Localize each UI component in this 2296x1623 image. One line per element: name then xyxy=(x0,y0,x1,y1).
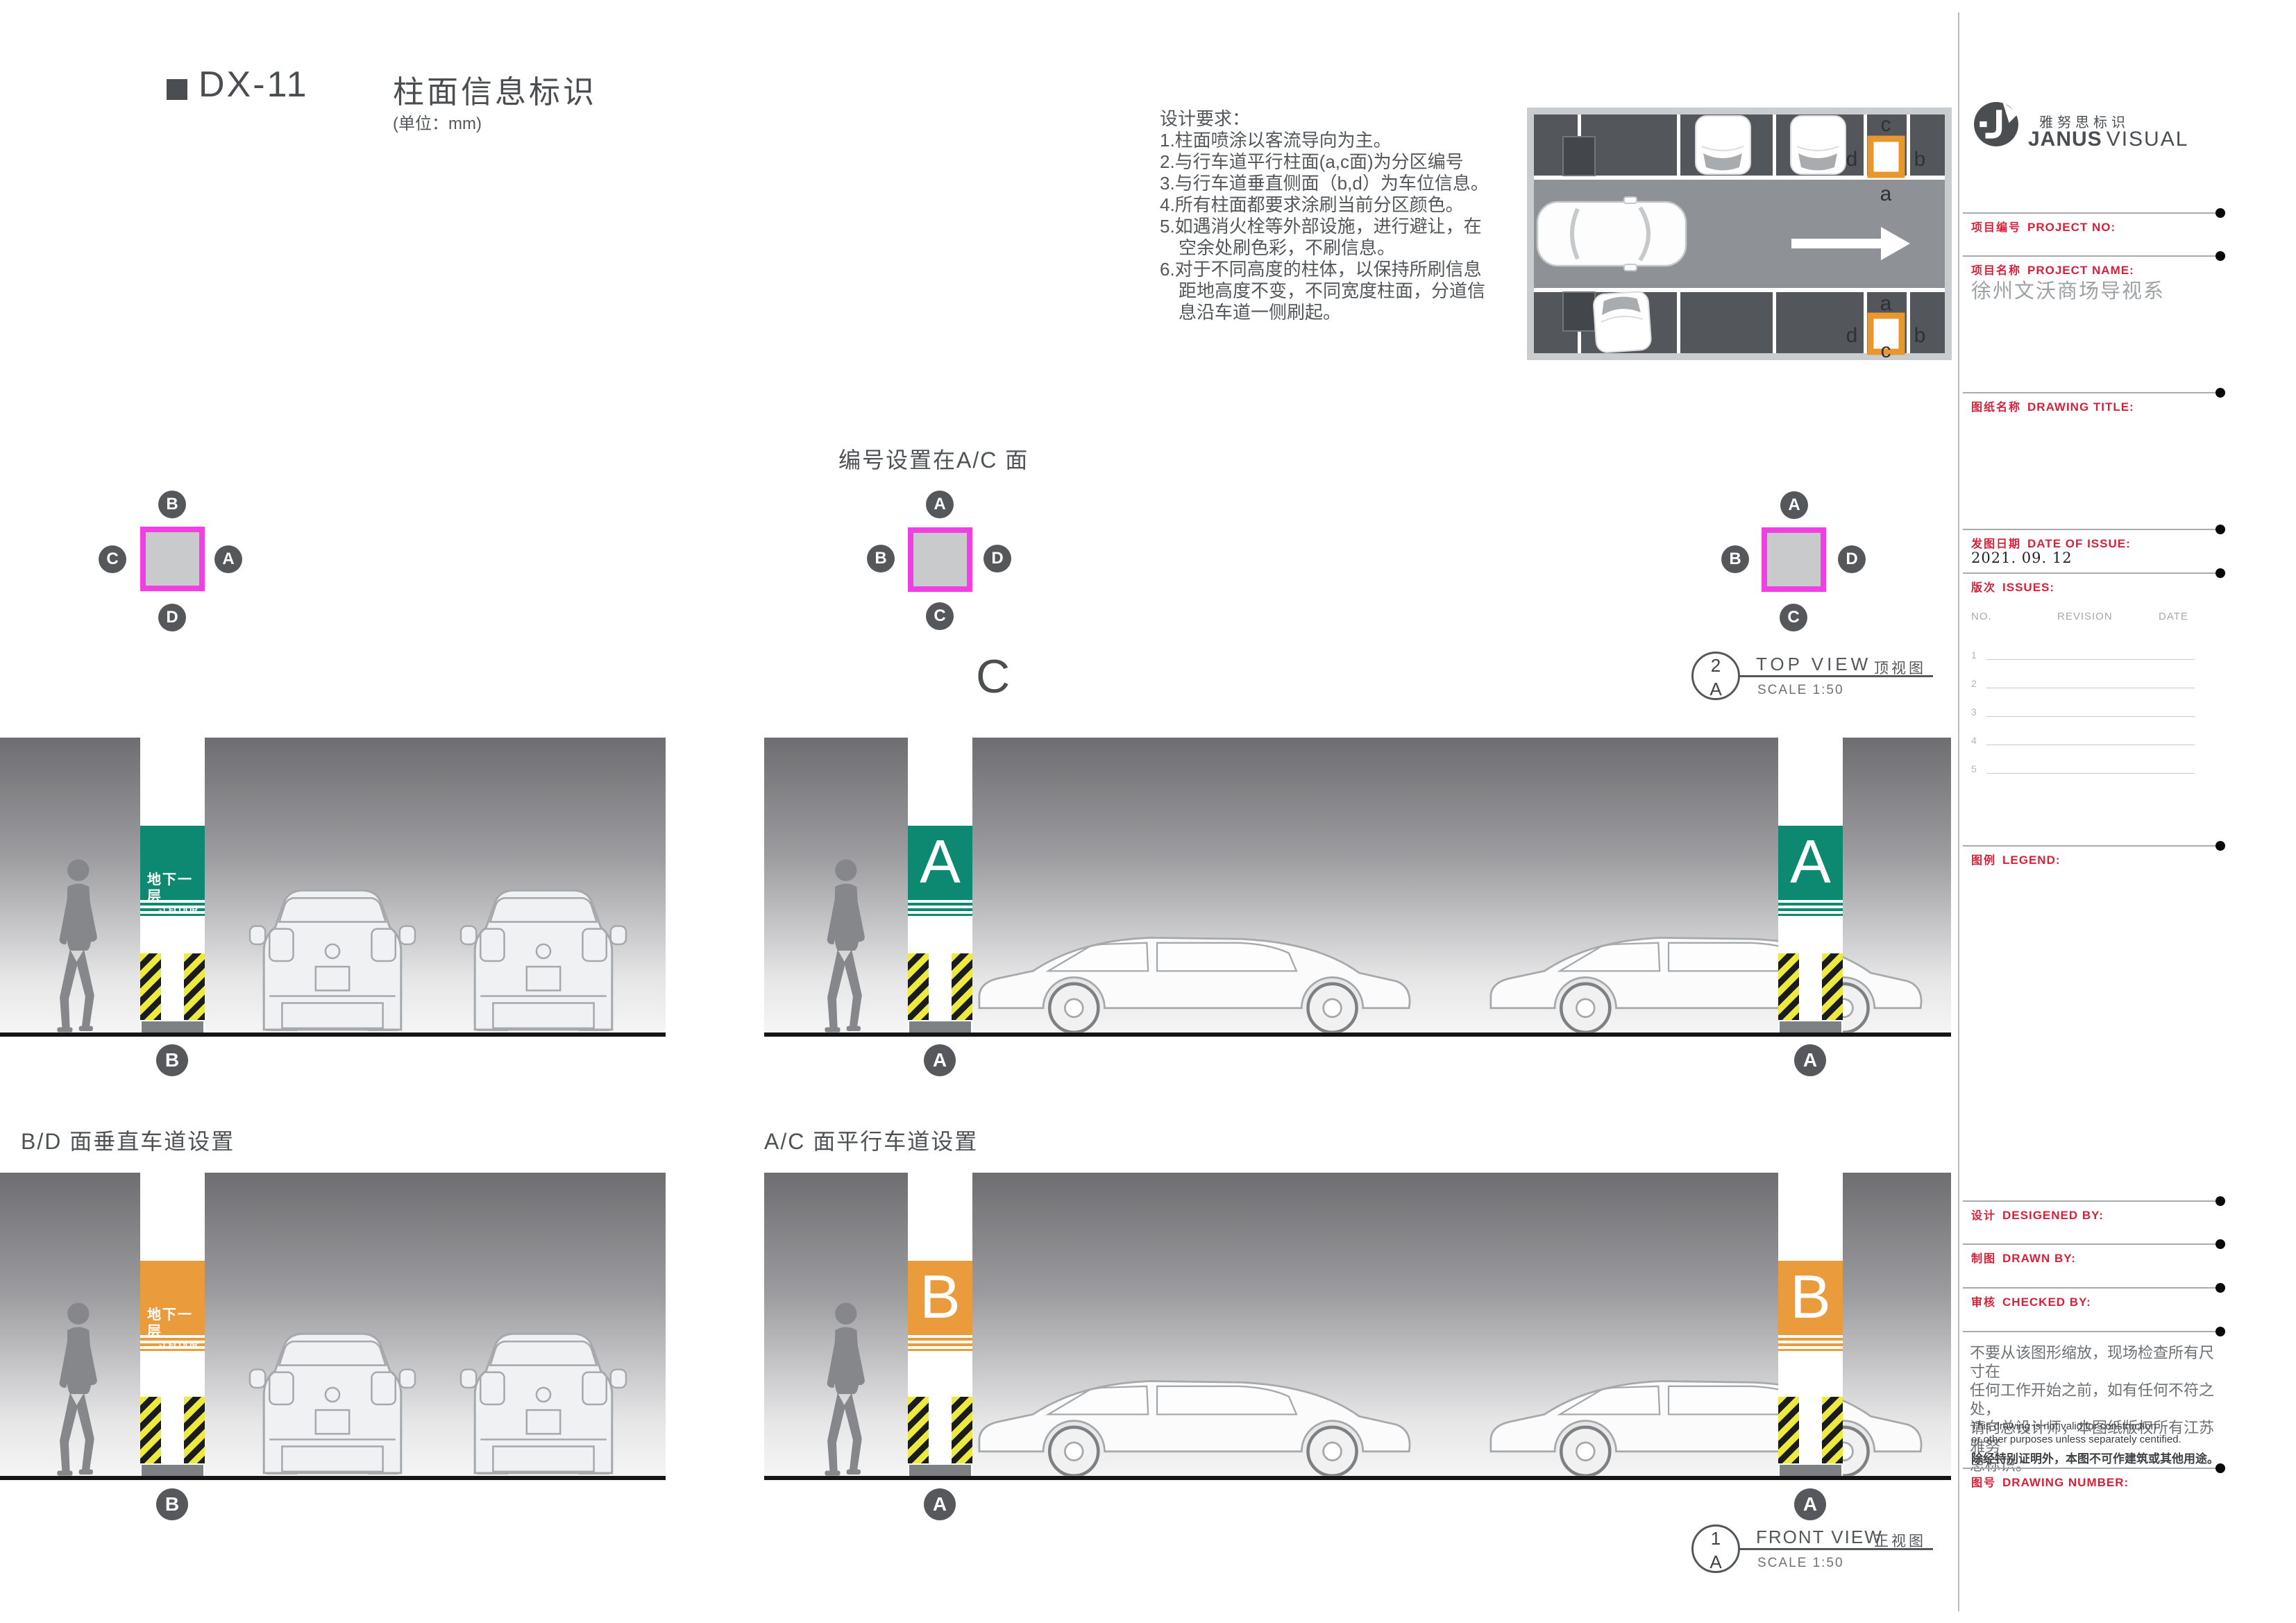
disclaimer-cn-bold: 除经特别证明外，本图不可作建筑或其他用途。 xyxy=(1971,1449,2235,1466)
car-rear-view xyxy=(459,884,627,1033)
hazard-stripe xyxy=(1778,953,1799,1020)
column-plinth xyxy=(142,1465,203,1476)
rev-header-revision: REVISION xyxy=(2057,611,2113,622)
field-rule xyxy=(1963,1331,2218,1332)
column-plinth xyxy=(909,1021,971,1033)
field-rule xyxy=(1963,1468,2218,1469)
face-label: c xyxy=(1881,339,1891,360)
view-number: 1 xyxy=(1691,1528,1740,1549)
issues-label: 版次ISSUES: xyxy=(1971,578,2054,595)
face-badge: C xyxy=(1780,604,1807,631)
title-bullet-square xyxy=(167,79,187,100)
sheet-title: 柱面信息标识 xyxy=(393,67,597,112)
date-of-issue-value: 2021. 09. 12 xyxy=(1971,550,2073,566)
label-cn: 项目编号 xyxy=(1971,222,2021,234)
date-of-issue-label: 发图日期DATE OF ISSUE: xyxy=(1971,534,2131,551)
face-label: a xyxy=(1880,292,1892,315)
person-silhouette xyxy=(44,853,108,1033)
face-badge: C xyxy=(926,602,954,630)
rev-header-no: NO. xyxy=(1971,611,1992,622)
column-face-callout: A xyxy=(1794,1488,1826,1520)
drawn-by-label: 制图DRAWN BY: xyxy=(1971,1249,2076,1266)
face-badge: B xyxy=(1721,545,1749,573)
requirement-line: 2.与行车道平行柱面(a,c面)为分区编号 xyxy=(1160,151,1538,173)
disclaimer-line: This drawing is not valid for constructi… xyxy=(1971,1420,2228,1433)
person-silhouette xyxy=(44,1297,108,1476)
structure-column-plan xyxy=(1563,137,1595,176)
view-title-cn: 正视图 xyxy=(1874,1530,1926,1551)
car-side-view xyxy=(1482,907,1930,1033)
hazard-stripe xyxy=(908,1397,929,1463)
disclaimer-line: 任何工作开始之前，如有任何不符之处， xyxy=(1970,1381,2227,1418)
brand-en-light: VISUAL xyxy=(2107,128,2189,151)
face-badge: A xyxy=(926,491,954,518)
zone-sign-green: A xyxy=(1778,826,1843,916)
rev-row-line xyxy=(1986,773,2195,774)
view-title-cn: 顶视图 xyxy=(1874,657,1926,678)
signed-column: B xyxy=(908,1173,972,1476)
checked-by-label: 审核CHECKED BY: xyxy=(1971,1293,2091,1309)
field-rule xyxy=(1963,1243,2218,1245)
face-label: d xyxy=(1846,324,1858,347)
elevation-bd-lower: 地下一层 -1 FLOOR xyxy=(0,1173,666,1480)
signed-column: A xyxy=(908,738,972,1033)
car-rear-view xyxy=(248,1327,416,1476)
label-cn: 发图日期 xyxy=(1971,538,2021,550)
car-side-view xyxy=(970,1350,1418,1476)
view-title: FRONT VIEW xyxy=(1756,1527,1883,1548)
floor-sign-green: 地下一层 -1 FLOOR xyxy=(140,826,205,916)
rev-row-no: 3 xyxy=(1971,706,1977,717)
view-ref-letter: A xyxy=(1691,1552,1740,1573)
car-side-view xyxy=(1482,1350,1930,1476)
rev-row-no: 2 xyxy=(1971,678,1977,689)
hazard-stripe xyxy=(184,953,205,1020)
column-topview-middle xyxy=(908,527,972,592)
parked-car-top xyxy=(1696,116,1750,174)
zone-sign-green: A xyxy=(908,826,972,916)
disclaimer-line: or other purposes unless separately cent… xyxy=(1971,1433,2228,1446)
column-topview-right xyxy=(1762,527,1826,592)
column-plinth xyxy=(142,1021,203,1033)
label-cn: 审核 xyxy=(1971,1297,1996,1309)
face-label: c xyxy=(1881,113,1891,136)
hazard-stripe xyxy=(140,1397,161,1463)
car-side-view xyxy=(970,907,1418,1033)
label-en: DRAWN BY: xyxy=(2002,1252,2076,1265)
face-badge: D xyxy=(1838,545,1866,573)
label-cn: 设计 xyxy=(1971,1210,1996,1222)
column-face-callout: A xyxy=(924,1044,956,1076)
view-title: TOP VIEW xyxy=(1756,654,1871,675)
hazard-stripe xyxy=(952,1397,972,1463)
signed-column: B xyxy=(1778,1173,1843,1476)
face-label: b xyxy=(1914,324,1926,347)
hazard-stripe xyxy=(140,953,161,1020)
hazard-stripe xyxy=(1778,1397,1799,1463)
requirements-title: 设计要求： xyxy=(1160,108,1538,130)
requirement-line: 1.柱面喷涂以客流导向为主。 xyxy=(1160,130,1538,151)
section-title-ac: A/C 面平行车道设置 xyxy=(764,1124,978,1156)
floor-sign-orange: 地下一层 -1 FLOOR xyxy=(140,1261,205,1351)
label-en: ISSUES: xyxy=(2002,581,2054,594)
view-number: 2 xyxy=(1691,655,1740,677)
janus-logo-icon xyxy=(1973,101,2019,147)
column-topview-left xyxy=(140,527,205,591)
parked-car-top xyxy=(1791,116,1846,174)
requirement-line: 6.对于不同高度的柱体，以保持所刷信息 xyxy=(1160,259,1538,280)
signed-column-plan-top xyxy=(1871,139,1902,175)
field-rule xyxy=(1963,255,2218,257)
rev-row-line xyxy=(1986,659,2195,660)
hazard-stripe xyxy=(1822,953,1843,1020)
label-en: DATE OF ISSUE: xyxy=(2027,537,2131,550)
rev-row-line xyxy=(1986,716,2195,717)
face-label: a xyxy=(1880,182,1892,205)
rev-header-date: DATE xyxy=(2159,611,2188,622)
face-badge: B xyxy=(158,491,186,518)
view-ref-letter: A xyxy=(1691,679,1740,700)
person-silhouette xyxy=(812,853,876,1033)
design-requirements: 设计要求： 1.柱面喷涂以客流导向为主。 2.与行车道平行柱面(a,c面)为分区… xyxy=(1160,108,1538,323)
hazard-stripe xyxy=(908,953,929,1020)
face-badge: A xyxy=(214,545,242,573)
column-face-callout: B xyxy=(156,1488,188,1520)
hazard-stripe xyxy=(184,1397,205,1463)
drawing-title-label: 图纸名称DRAWING TITLE: xyxy=(1971,398,2134,414)
view-scale: SCALE 1:50 xyxy=(1757,1556,1844,1571)
zone-letter: B xyxy=(908,1266,972,1327)
drawing-sheet: DX-11 柱面信息标识 (单位：mm) 设计要求： 1.柱面喷涂以客流导向为主… xyxy=(0,0,2296,1623)
project-name-value: 徐州文沃商场导视系 xyxy=(1971,275,2165,304)
signed-column: A xyxy=(1778,738,1843,1033)
person-silhouette xyxy=(812,1297,876,1476)
rev-row-no: 1 xyxy=(1971,649,1977,661)
zone-sign-orange: B xyxy=(1778,1261,1843,1351)
zone-sign-orange: B xyxy=(908,1261,972,1351)
hazard-stripe xyxy=(1822,1397,1843,1463)
zone-letter: A xyxy=(1778,831,1843,892)
label-cn: 图号 xyxy=(1971,1477,1996,1489)
column-face-callout: B xyxy=(156,1044,188,1076)
column-plinth xyxy=(1780,1021,1841,1033)
zone-letter: A xyxy=(908,831,972,892)
face-badge: D xyxy=(158,604,186,631)
project-no-label: 项目编号PROJECT NO: xyxy=(1971,218,2116,235)
face-badge: B xyxy=(867,545,895,572)
requirement-line: 3.与行车道垂直侧面（b,d）为车位信息。 xyxy=(1160,173,1538,194)
field-rule xyxy=(1963,212,2218,214)
disclaimer-line: 不要从该图形缩放，现场检查所有尺寸在 xyxy=(1970,1343,2227,1381)
rev-row-line xyxy=(1986,688,2195,688)
signed-column: 地下一层 -1 FLOOR xyxy=(140,1173,205,1476)
parking-plan-diagram: c d b a a d b c xyxy=(1527,108,1952,360)
structure-column-plan xyxy=(1563,292,1595,331)
requirement-line: 5.如遇消火栓等外部设施，进行避让，在 xyxy=(1160,216,1538,237)
column-face-callout: A xyxy=(924,1488,956,1520)
requirement-line: 距地高度不变，不同宽度柱面，分道信 xyxy=(1160,280,1538,302)
label-cn: 版次 xyxy=(1971,582,1996,594)
numbering-note: 编号设置在A/C 面 xyxy=(838,443,1029,475)
face-label: d xyxy=(1846,148,1858,171)
designed-by-label: 设计DESIGENED BY: xyxy=(1971,1206,2104,1223)
field-rule xyxy=(1963,392,2218,393)
zone-letter: B xyxy=(1778,1266,1843,1327)
sheet-unit: (单位：mm) xyxy=(393,110,482,134)
field-rule xyxy=(1963,1200,2218,1202)
elevation-bd-upper: 地下一层 -1 FLOOR xyxy=(0,738,666,1037)
face-label: b xyxy=(1914,148,1926,171)
requirement-line: 4.所有柱面都要求涂刷当前分区颜色。 xyxy=(1160,194,1538,216)
titleblock-separator xyxy=(1958,12,1959,1611)
field-rule xyxy=(1963,845,2218,847)
sheet-code: DX-11 xyxy=(199,64,309,105)
field-rule xyxy=(1963,1287,2218,1289)
hazard-stripe xyxy=(952,953,972,1020)
label-en: PROJECT NO: xyxy=(2027,221,2116,234)
zone-letter-c: C xyxy=(976,649,1010,704)
drawing-number-label: 图号DRAWING NUMBER: xyxy=(1971,1473,2129,1490)
driving-car-topview xyxy=(1537,197,1686,271)
label-cn: 图例 xyxy=(1971,855,1996,867)
view-scale: SCALE 1:50 xyxy=(1757,683,1844,698)
column-face-callout: A xyxy=(1794,1044,1826,1076)
brand-name-en: JANUSVISUAL xyxy=(2028,128,2188,151)
label-en: LEGEND: xyxy=(2002,853,2061,867)
label-en: CHECKED BY: xyxy=(2002,1295,2091,1309)
section-title-bd: B/D 面垂直车道设置 xyxy=(21,1124,235,1156)
column-plinth xyxy=(1780,1465,1841,1476)
rev-row-no: 4 xyxy=(1971,735,1977,746)
label-cn: 图纸名称 xyxy=(1971,402,2021,414)
requirement-line: 空余处刷色彩，不刷信息。 xyxy=(1160,237,1538,259)
label-en: DESIGENED BY: xyxy=(2002,1209,2104,1222)
car-rear-view xyxy=(459,1327,627,1476)
parked-car-bottom xyxy=(1593,291,1652,352)
brand-en-bold: JANUS xyxy=(2028,128,2102,151)
rev-row-line xyxy=(1986,745,2195,745)
label-en: DRAWING NUMBER: xyxy=(2002,1476,2129,1489)
label-cn: 制图 xyxy=(1971,1253,1996,1265)
face-badge: D xyxy=(984,545,1011,572)
car-rear-view xyxy=(248,884,416,1033)
column-plinth xyxy=(909,1465,971,1476)
field-rule xyxy=(1963,572,2218,574)
face-badge: C xyxy=(99,545,126,573)
requirement-line: 息沿车道一侧刷起。 xyxy=(1160,302,1538,323)
signed-column: 地下一层 -1 FLOOR xyxy=(140,738,205,1033)
disclaimer-en: This drawing is not valid for constructi… xyxy=(1971,1420,2228,1446)
elevation-ac-upper: A A xyxy=(764,738,1951,1037)
field-rule xyxy=(1963,529,2218,530)
legend-label: 图例LEGEND: xyxy=(1971,851,2061,867)
label-en: DRAWING TITLE: xyxy=(2027,400,2134,414)
rev-row-no: 5 xyxy=(1971,763,1977,774)
face-badge: A xyxy=(1780,491,1808,519)
elevation-ac-lower: B B xyxy=(764,1173,1951,1480)
